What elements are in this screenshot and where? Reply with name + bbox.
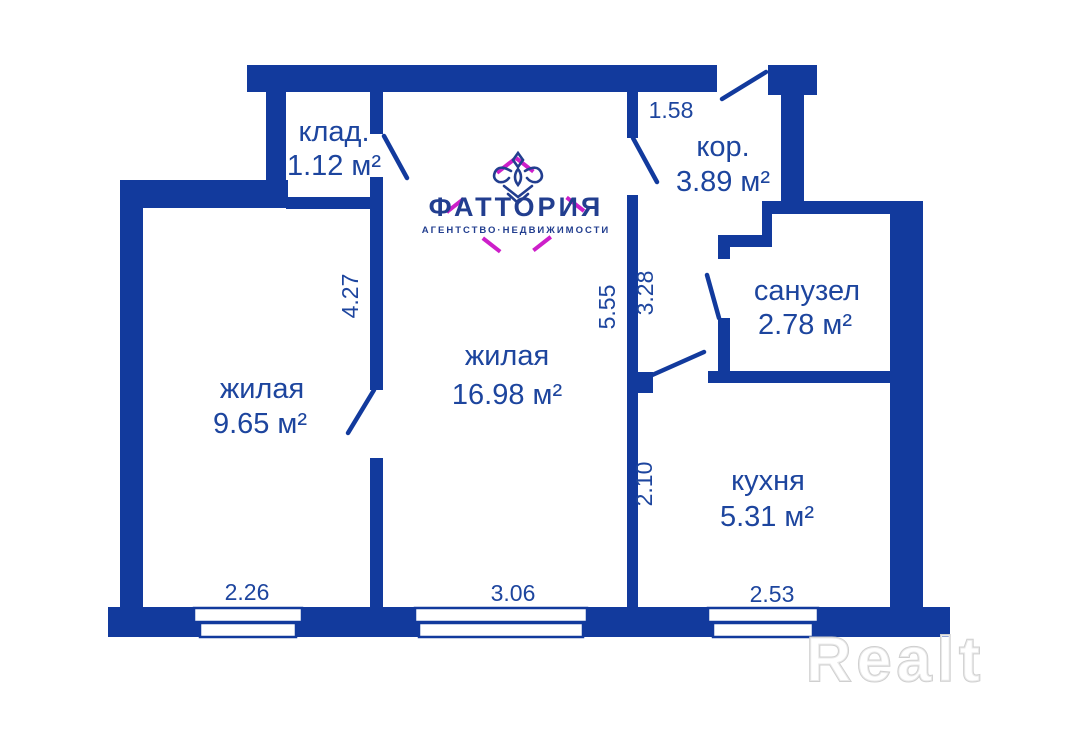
dim-living-small-width: 2.26: [225, 579, 270, 605]
room-label-living-small: жилая: [220, 373, 304, 405]
wall-corridor-right: [781, 92, 804, 207]
wall-top-exterior: [247, 65, 717, 92]
wall-left-exterior: [120, 180, 143, 607]
logo-tagline: АГЕНТСТВО·НЕДВИЖИМОСТИ: [422, 225, 610, 236]
floor-plan-image: клад. 1.12 м² кор. 3.89 м² санузел 2.78 …: [0, 0, 1080, 737]
wall-partition-mid: [370, 177, 383, 390]
room-area-bathroom: 2.78 м²: [758, 309, 852, 341]
window-living-large-inner: [419, 623, 583, 637]
room-area-storage: 1.12 м²: [287, 150, 381, 182]
room-label-living-large: жилая: [465, 340, 549, 372]
door-corridor: [633, 138, 657, 182]
dim-living-large-width: 3.06: [491, 580, 536, 606]
dim-living-small-height: 4.27: [337, 274, 363, 319]
wall-living-small-top: [120, 180, 288, 208]
door-bathroom: [707, 275, 719, 318]
wall-bathroom-notch-stub: [718, 247, 730, 259]
dim-living-large-height: 5.55: [594, 285, 620, 330]
realt-watermark: Realt: [806, 625, 985, 695]
room-area-corridor: 3.89 м²: [676, 166, 770, 198]
window-kitchen-outer: [708, 608, 818, 622]
dim-kitchen-height: 2.10: [631, 462, 657, 507]
window-living-large-outer: [415, 608, 587, 622]
logo-brand-name: ФАТТОРИЯ: [429, 192, 604, 222]
wall-right-exterior: [890, 201, 923, 607]
window-kitchen-inner: [713, 623, 813, 637]
agency-logo: ФАТТОРИЯ АГЕНТСТВО·НЕДВИЖИМОСТИ: [422, 153, 610, 264]
floor-plan-svg: клад. 1.12 м² кор. 3.89 м² санузел 2.78 …: [0, 0, 1080, 737]
dim-kitchen-width: 2.53: [750, 581, 795, 607]
window-living-small-outer: [194, 608, 302, 622]
window-living-small-inner: [200, 623, 296, 637]
room-area-living-large: 16.98 м²: [452, 379, 563, 411]
wall-bathroom-left: [718, 318, 730, 371]
room-label-storage: клад.: [298, 116, 369, 148]
wall-bathroom-top: [770, 201, 890, 214]
door-storage: [384, 136, 407, 178]
room-area-living-small: 9.65 м²: [213, 408, 307, 440]
door-kitchen: [650, 352, 704, 376]
door-entrance: [722, 72, 766, 99]
wall-storage-right: [370, 92, 383, 134]
logo-text: ФАТТОРИЯ АГЕНТСТВО·НЕДВИЖИМОСТИ: [422, 192, 610, 236]
room-labels: клад. 1.12 м² кор. 3.89 м² санузел 2.78 …: [213, 116, 860, 533]
room-label-corridor: кор.: [696, 131, 749, 163]
dim-corridor-height: 3.28: [632, 271, 658, 316]
wall-central-top: [627, 92, 638, 138]
wall-entrance-block: [768, 65, 817, 95]
room-label-kitchen: кухня: [731, 465, 805, 497]
wall-storage-bottom: [286, 197, 383, 209]
room-area-kitchen: 5.31 м²: [720, 501, 814, 533]
door-living-small: [348, 390, 374, 433]
fleur-petal: [515, 169, 521, 185]
dim-corridor-width: 1.58: [649, 97, 694, 123]
wall-storage-left: [266, 92, 286, 208]
wall-kitchen-top: [708, 371, 890, 383]
room-label-bathroom: санузел: [754, 275, 860, 307]
windows: [194, 608, 818, 637]
wall-partition-low: [370, 458, 383, 607]
watermark: Realt: [806, 625, 985, 695]
wall-bathroom-notch-h: [718, 235, 772, 247]
